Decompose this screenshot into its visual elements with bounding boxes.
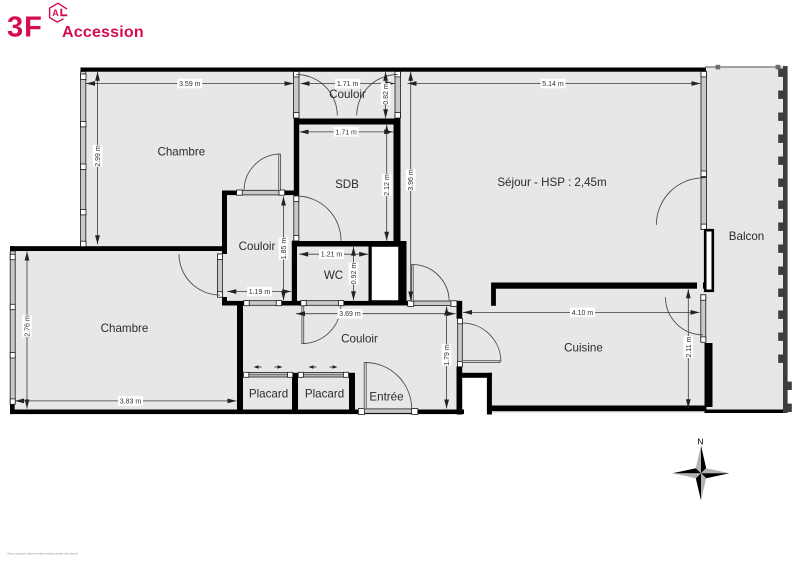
svg-text:0.82 m: 0.82 m (383, 83, 390, 105)
svg-text:3.96 m: 3.96 m (408, 169, 415, 191)
svg-text:Chambre: Chambre (101, 322, 149, 335)
svg-text:1.19 m: 1.19 m (249, 289, 271, 296)
svg-text:4.10 m: 4.10 m (572, 310, 594, 317)
svg-text:2.11 m: 2.11 m (686, 336, 693, 357)
svg-text:3F: 3F (7, 12, 43, 44)
svg-text:5.14 m: 5.14 m (542, 81, 564, 88)
svg-text:A: A (52, 8, 59, 18)
svg-text:2.76 m: 2.76 m (25, 315, 32, 337)
svg-text:2.99 m: 2.99 m (95, 145, 102, 167)
svg-text:Entrée: Entrée (369, 390, 403, 403)
svg-text:Séjour - HSP : 2,45m: Séjour - HSP : 2,45m (497, 176, 606, 189)
svg-text:N: N (697, 437, 703, 447)
svg-text:1.21 m: 1.21 m (321, 252, 343, 259)
svg-text:1.85 m: 1.85 m (281, 238, 288, 260)
svg-text:1.71 m: 1.71 m (335, 129, 357, 136)
svg-text:3.69 m: 3.69 m (339, 311, 361, 318)
svg-text:Couloir: Couloir (341, 333, 378, 346)
svg-text:1.71 m: 1.71 m (337, 81, 359, 88)
svg-text:SDB: SDB (335, 178, 359, 191)
svg-text:3.83 m: 3.83 m (120, 398, 142, 405)
svg-text:Accession: Accession (62, 24, 144, 41)
svg-text:Chambre: Chambre (157, 146, 205, 159)
svg-text:Balcon: Balcon (729, 230, 764, 243)
svg-text:0.92 m: 0.92 m (351, 263, 358, 285)
svg-text:Placard: Placard (305, 387, 344, 400)
svg-text:3.59 m: 3.59 m (179, 81, 201, 88)
svg-text:Placard: Placard (249, 387, 288, 400)
svg-text:Plan non contractuel - Mesures: Plan non contractuel - Mesures et surfac… (8, 552, 78, 556)
svg-text:Couloir: Couloir (329, 88, 366, 101)
svg-text:1.79 m: 1.79 m (444, 344, 451, 366)
svg-text:WC: WC (324, 269, 343, 282)
svg-text:Couloir: Couloir (239, 240, 276, 253)
svg-text:Cuisine: Cuisine (564, 342, 603, 355)
svg-text:2.12 m: 2.12 m (384, 174, 391, 196)
